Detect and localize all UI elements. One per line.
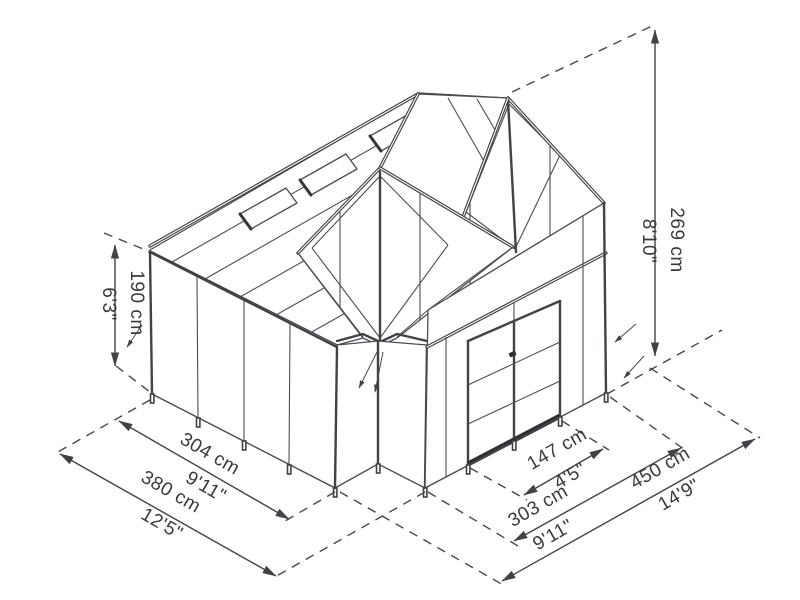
greenhouse-dimension-diagram: 190 cm 6'3" 269 cm 8'10" 304 cm 9'11" 38… xyxy=(0,0,800,600)
dim-label-total-height-cm: 269 cm xyxy=(666,207,687,272)
dim-label-wall-height-ft: 6'3" xyxy=(98,287,119,321)
dim-wall-height: 190 cm 6'3" xyxy=(98,233,150,392)
dim-label-wall-height-cm: 190 cm xyxy=(126,270,147,335)
dim-label-total-height-ft: 8'10" xyxy=(638,219,659,264)
dim-label-front-wall-ft: 9'11" xyxy=(529,515,577,555)
dim-label-total-depth-ft: 12'5" xyxy=(137,504,186,544)
dim-total-depth: 380 cm 12'5" xyxy=(60,454,425,578)
diagram-canvas: 190 cm 6'3" 269 cm 8'10" 304 cm 9'11" 38… xyxy=(0,0,800,600)
